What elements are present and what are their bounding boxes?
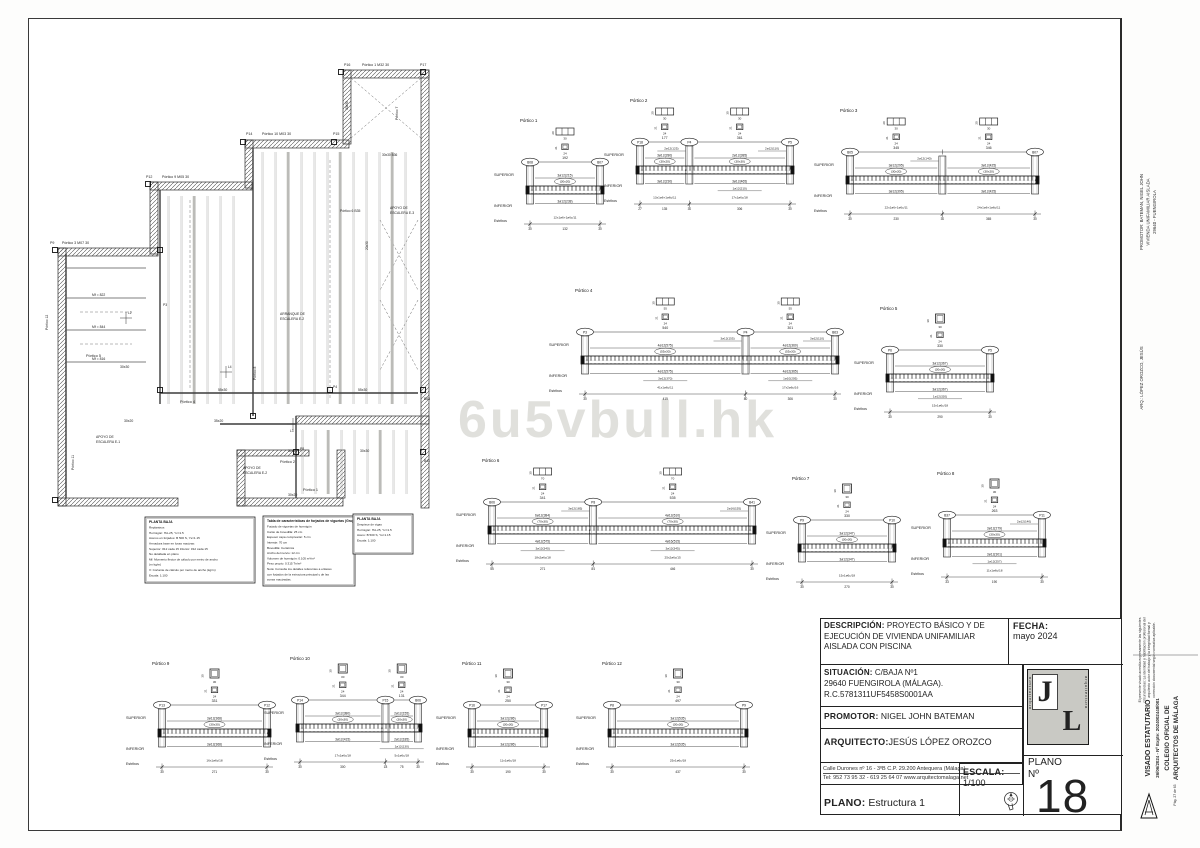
- svg-text:30: 30: [993, 490, 997, 494]
- svg-text:365: 365: [986, 217, 992, 221]
- svg-text:SUPERIOR: SUPERIOR: [911, 526, 931, 530]
- svg-text:30: 30: [987, 127, 991, 131]
- svg-text:3ø12(345): 3ø12(345): [665, 547, 679, 551]
- svg-text:B06: B06: [415, 698, 421, 702]
- svg-text:SUPERIOR: SUPERIOR: [494, 173, 514, 177]
- svg-text:11x1ø6c/18: 11x1ø6c/18: [500, 759, 516, 763]
- svg-text:24: 24: [789, 322, 793, 326]
- svg-text:4ø16(515): 4ø16(515): [665, 539, 680, 543]
- svg-text:30: 30: [341, 675, 345, 679]
- situation-label: SITUACIÓN:: [824, 668, 873, 677]
- svg-text:190: 190: [505, 770, 511, 774]
- svg-text:2ø12(385): 2ø12(385): [732, 154, 747, 158]
- svg-text:55: 55: [664, 307, 668, 311]
- svg-text:INFERIOR: INFERIOR: [436, 747, 454, 751]
- drawing-sheet: { "document": { "watermark": "6u5vbull.h…: [0, 0, 1200, 848]
- svg-text:(30x30): (30x30): [209, 723, 220, 727]
- svg-text:3ø12(535): 3ø12(535): [670, 742, 685, 746]
- svg-text:Pórtico 8: Pórtico 8: [937, 471, 955, 476]
- svg-text:B08: B08: [527, 160, 533, 164]
- svg-text:3ø12(465): 3ø12(465): [732, 179, 747, 183]
- svg-text:(30x30): (30x30): [337, 718, 348, 722]
- svg-text:13x1ø6+1ø6c/11: 13x1ø6+1ø6c/11: [653, 196, 676, 200]
- svg-text:SUPERIOR: SUPERIOR: [549, 343, 569, 347]
- svg-text:30: 30: [676, 680, 680, 684]
- svg-text:3ø12(425): 3ø12(425): [981, 164, 996, 168]
- svg-text:(30x30): (30x30): [734, 160, 745, 164]
- svg-text:SUPERIOR: SUPERIOR: [766, 531, 786, 535]
- svg-text:177: 177: [662, 136, 668, 140]
- north-stamp-icon: [1001, 790, 1021, 812]
- svg-text:30: 30: [800, 585, 804, 589]
- svg-text:330: 330: [844, 514, 850, 518]
- svg-text:41x1ø6c/11: 41x1ø6c/11: [657, 386, 673, 390]
- svg-text:21: 21: [836, 504, 840, 508]
- situation-line1: C/BAJA Nº1: [875, 668, 918, 677]
- svg-text:3ø12(367): 3ø12(367): [932, 362, 947, 366]
- svg-text:Estribos: Estribos: [126, 762, 139, 766]
- svg-text:24: 24: [341, 690, 345, 694]
- svg-text:30: 30: [529, 471, 533, 475]
- svg-text:INFERIOR: INFERIOR: [494, 204, 512, 208]
- svg-text:Pórtico 10: Pórtico 10: [290, 656, 310, 661]
- svg-text:1ø12(210): 1ø12(210): [733, 187, 747, 191]
- svg-text:Pórtico 7: Pórtico 7: [792, 476, 810, 481]
- svg-text:21: 21: [984, 499, 988, 503]
- svg-text:21: 21: [654, 126, 658, 130]
- svg-text:(70x30): (70x30): [667, 520, 678, 524]
- svg-text:24: 24: [845, 510, 849, 514]
- svg-text:Estribos: Estribos: [549, 389, 562, 393]
- svg-text:30: 30: [583, 397, 587, 401]
- svg-text:Estribos: Estribos: [576, 762, 589, 766]
- svg-text:30: 30: [416, 765, 420, 769]
- svg-text:30: 30: [750, 567, 754, 571]
- svg-text:3ø12(295): 3ø12(295): [889, 164, 904, 168]
- svg-text:24: 24: [676, 695, 680, 699]
- svg-text:21: 21: [929, 334, 933, 338]
- svg-text:21: 21: [729, 126, 733, 130]
- svg-text:P17: P17: [541, 703, 547, 707]
- date-value: mayo 2024: [1013, 631, 1119, 641]
- svg-text:230: 230: [894, 217, 900, 221]
- svg-text:PROMOTOR: BATEMAN, NIGEL: PROMOTOR: BATEMAN, NIGEL JOHN: [1139, 174, 1144, 250]
- portico-diagram-6: Pórtico 67030242170302421B06P8B41341535S…: [456, 452, 782, 590]
- svg-text:P9: P9: [742, 703, 746, 707]
- svg-text:21: 21: [497, 689, 501, 693]
- portico-diagram-3: Pórtico 33020242130202421B05B07345346SUP…: [814, 102, 1065, 240]
- svg-text:30: 30: [528, 227, 532, 231]
- svg-text:(30x20): (30x20): [891, 170, 902, 174]
- svg-text:B05: B05: [847, 150, 853, 154]
- svg-text:30: 30: [213, 680, 217, 684]
- svg-text:30: 30: [1033, 217, 1037, 221]
- date-cell: FECHA: mayo 2024: [1009, 619, 1123, 665]
- svg-text:(30x20): (30x20): [983, 170, 994, 174]
- svg-text:4ø12(610): 4ø12(610): [665, 514, 680, 518]
- svg-text:29640 - FUENGIROLA: 29640 - FUENGIROLA: [1152, 190, 1157, 234]
- svg-text:P6: P6: [888, 348, 892, 352]
- portico-diagram-4: Pórtico 45530242155302421P3P4B63540301SU…: [549, 282, 865, 420]
- svg-text:4ø12(575): 4ø12(575): [658, 369, 673, 373]
- portico-diagram-5: Pórtico 530302421P6P5330SUPERIOR3ø12(367…: [854, 300, 1020, 438]
- svg-text:Estribos: Estribos: [604, 199, 617, 203]
- svg-text:1ø12(257): 1ø12(257): [987, 560, 1001, 564]
- svg-text:3ø12(368): 3ø12(368): [207, 717, 222, 721]
- svg-text:30: 30: [833, 489, 837, 493]
- svg-text:20: 20: [975, 121, 979, 125]
- svg-text:(30x30): (30x30): [842, 538, 853, 542]
- svg-text:arquitecto autor del trabajo y: arquitecto autor del trabajo y la integr…: [1147, 622, 1151, 698]
- svg-text:1ø12(320): 1ø12(320): [933, 395, 947, 399]
- svg-text:ARQUITECTOS DE MÁLAGA: ARQUITECTOS DE MÁLAGA: [1173, 695, 1180, 780]
- svg-text:COLEGIO OFICIAL DE: COLEGIO OFICIAL DE: [1164, 705, 1171, 770]
- svg-text:B07: B07: [1032, 150, 1038, 154]
- svg-text:30: 30: [664, 674, 668, 678]
- svg-text:SUPERIOR: SUPERIOR: [456, 513, 476, 517]
- svg-text:B06: B06: [489, 500, 495, 504]
- svg-text:INFERIOR: INFERIOR: [576, 747, 594, 751]
- svg-text:VISADO ESTATUTARIO: VISADO ESTATUTARIO: [1145, 699, 1152, 777]
- svg-text:30: 30: [494, 674, 498, 678]
- svg-text:SUPERIOR: SUPERIOR: [264, 711, 284, 715]
- svg-text:(30x30): (30x30): [989, 533, 1000, 537]
- svg-text:271: 271: [540, 567, 546, 571]
- svg-text:24: 24: [213, 695, 217, 699]
- svg-text:3ø12(110): 3ø12(110): [810, 337, 824, 341]
- svg-text:446: 446: [670, 567, 676, 571]
- svg-text:21: 21: [532, 486, 536, 490]
- plan-title-label: PLANO:: [824, 797, 865, 809]
- svg-text:Pág. 27 de 63: Pág. 27 de 63: [1173, 784, 1177, 805]
- svg-text:30: 30: [833, 397, 837, 401]
- svg-text:3ø12(155): 3ø12(155): [720, 337, 734, 341]
- svg-text:4ø12(360): 4ø12(360): [783, 344, 798, 348]
- svg-text:4ø12(575): 4ø12(575): [535, 539, 550, 543]
- svg-text:21: 21: [885, 136, 889, 140]
- svg-text:INFERIOR: INFERIOR: [126, 747, 144, 751]
- svg-text:3ø12(370): 3ø12(370): [658, 377, 672, 381]
- svg-text:2ø12(185): 2ø12(185): [394, 737, 409, 741]
- svg-text:(70x30): (70x30): [537, 520, 548, 524]
- svg-text:SUPERIOR: SUPERIOR: [854, 361, 874, 365]
- svg-text:132: 132: [562, 227, 568, 231]
- svg-text:Estribos: Estribos: [766, 577, 779, 581]
- svg-text:540: 540: [662, 326, 668, 330]
- svg-text:21: 21: [779, 316, 783, 320]
- svg-text:16x1ø6c/18: 16x1ø6c/18: [206, 759, 222, 763]
- svg-text:30: 30: [298, 765, 302, 769]
- svg-text:30: 30: [610, 770, 614, 774]
- promoter-cell: PROMOTOR: NIGEL JOHN BATEMAN: [821, 707, 1023, 729]
- svg-text:Pórtico 12: Pórtico 12: [602, 661, 622, 666]
- svg-text:30: 30: [890, 585, 894, 589]
- svg-text:70: 70: [541, 477, 545, 481]
- svg-text:SUPERIOR: SUPERIOR: [604, 153, 624, 157]
- svg-text:21: 21: [332, 684, 336, 688]
- svg-text:P16: P16: [469, 703, 475, 707]
- svg-text:ARQ.: LÓPEZ OROZCO, JESÚS: ARQ.: LÓPEZ OROZCO, JESÚS: [1139, 346, 1144, 409]
- svg-text:P5: P5: [988, 348, 992, 352]
- svg-text:30: 30: [506, 680, 510, 684]
- svg-text:70: 70: [671, 477, 675, 481]
- svg-text:27: 27: [638, 207, 642, 211]
- svg-text:300: 300: [340, 765, 346, 769]
- svg-text:30: 30: [598, 227, 602, 231]
- svg-text:INFERIOR: INFERIOR: [549, 374, 567, 378]
- svg-text:P8: P8: [610, 703, 614, 707]
- svg-text:P4: P4: [743, 330, 747, 334]
- description-label: DESCRIPCIÓN:: [824, 621, 885, 630]
- svg-text:30: 30: [981, 484, 985, 488]
- svg-text:20: 20: [551, 131, 555, 135]
- svg-text:6ø12(384): 6ø12(384): [535, 514, 550, 518]
- svg-text:3ø12(535): 3ø12(535): [670, 717, 685, 721]
- situation-cell: SITUACIÓN: C/BAJA Nº1 29640 FUENGIROLA (…: [821, 665, 1023, 707]
- svg-text:415: 415: [663, 397, 669, 401]
- svg-text:30: 30: [895, 127, 899, 131]
- scale-value: 1/100: [963, 778, 1020, 789]
- svg-text:P5: P5: [788, 140, 792, 144]
- svg-text:17x1ø6c/18: 17x1ø6c/18: [732, 196, 748, 200]
- svg-text:SUPERIOR: SUPERIOR: [576, 716, 596, 720]
- svg-text:21: 21: [654, 316, 658, 320]
- svg-text:30: 30: [726, 111, 730, 115]
- svg-text:30: 30: [388, 669, 392, 673]
- svg-text:B37: B37: [944, 513, 950, 517]
- svg-text:24: 24: [664, 322, 668, 326]
- svg-text:21: 21: [204, 689, 208, 693]
- svg-text:Estribos: Estribos: [911, 572, 924, 576]
- svg-text:(30x20): (30x20): [659, 160, 670, 164]
- svg-text:Estribos: Estribos: [854, 407, 867, 411]
- svg-text:30: 30: [201, 674, 205, 678]
- svg-text:3ø12(415): 3ø12(415): [335, 737, 350, 741]
- svg-text:2ø12(140): 2ø12(140): [1017, 520, 1031, 524]
- svg-text:24: 24: [895, 142, 899, 146]
- architect-logo: J L arquitectura arquitectura: [1027, 669, 1089, 745]
- svg-text:30: 30: [941, 217, 945, 221]
- svg-text:270: 270: [844, 585, 850, 589]
- svg-text:P13: P13: [159, 703, 165, 707]
- svg-text:circunstancias: La identidad y: circunstancias: La identidad y habilitac…: [1143, 617, 1147, 703]
- svg-text:3ø12(215): 3ø12(215): [557, 174, 572, 178]
- situation-line3: R.C.5781311UF5458S0001AA: [824, 689, 1019, 700]
- svg-text:271: 271: [212, 770, 218, 774]
- svg-text:30: 30: [663, 117, 667, 121]
- svg-text:24: 24: [993, 505, 997, 509]
- svg-text:346: 346: [986, 146, 992, 150]
- svg-text:30: 30: [742, 770, 746, 774]
- svg-text:131: 131: [399, 694, 405, 698]
- svg-text:Pórtico 11: Pórtico 11: [462, 661, 482, 666]
- svg-text:B07: B07: [597, 160, 603, 164]
- svg-text:P4: P4: [687, 140, 691, 144]
- svg-text:24: 24: [541, 492, 545, 496]
- svg-text:20: 20: [651, 111, 655, 115]
- svg-text:30: 30: [563, 137, 567, 141]
- svg-text:Pórtico 2: Pórtico 2: [630, 98, 648, 103]
- svg-text:21: 21: [554, 146, 558, 150]
- svg-text:24x1ø6+1ø6c/11: 24x1ø6+1ø6c/11: [977, 206, 1000, 210]
- svg-text:535: 535: [670, 496, 676, 500]
- portico-diagram-2: Pórtico 23020242130302421P18P4P5177361SU…: [604, 92, 820, 230]
- svg-text:3ø12(286): 3ø12(286): [500, 742, 515, 746]
- promoter-label: PROMOTOR:: [824, 711, 879, 721]
- svg-text:(55x30): (55x30): [660, 350, 671, 354]
- description-cell: DESCRIPCIÓN: PROYECTO BÁSICO Y DE EJECUC…: [821, 619, 1009, 665]
- svg-text:SUPERIOR: SUPERIOR: [436, 716, 456, 720]
- svg-text:20: 20: [882, 121, 886, 125]
- plan-title-cell: PLANO: Estructura 1: [821, 785, 959, 816]
- svg-text:135: 135: [662, 207, 668, 211]
- svg-text:330: 330: [937, 344, 943, 348]
- svg-text:30: 30: [988, 415, 992, 419]
- portico-diagram-10: Pórtico 103030242130302421P14P15B0634413…: [264, 650, 448, 788]
- svg-text:30: 30: [542, 770, 546, 774]
- svg-text:El presente visado acredita ex: El presente visado acredita expresamente…: [1138, 617, 1142, 702]
- svg-text:3ø12(340): 3ø12(340): [535, 547, 549, 551]
- svg-text:18: 18: [384, 765, 388, 769]
- svg-text:2ø16(155): 2ø16(155): [727, 507, 741, 511]
- svg-text:3ø12(347): 3ø12(347): [839, 532, 854, 536]
- svg-text:Estribos: Estribos: [494, 219, 507, 223]
- svg-text:33: 33: [945, 580, 949, 584]
- svg-text:2ø12(110): 2ø12(110): [765, 147, 779, 151]
- svg-text:P9: P9: [800, 518, 804, 522]
- svg-text:17x2ø6c/16: 17x2ø6c/16: [782, 386, 798, 390]
- svg-text:(30x30): (30x30): [935, 368, 946, 372]
- svg-text:190: 190: [992, 580, 998, 584]
- svg-text:24: 24: [400, 690, 404, 694]
- svg-text:(55x30): (55x30): [785, 350, 796, 354]
- svg-text:263: 263: [992, 509, 998, 513]
- svg-text:3ø12(279): 3ø12(279): [987, 527, 1002, 531]
- logo-letter-j: J: [1032, 674, 1058, 710]
- svg-text:INFERIOR: INFERIOR: [456, 544, 474, 548]
- svg-text:30: 30: [776, 301, 780, 305]
- svg-text:4ø12(365): 4ø12(365): [783, 369, 798, 373]
- svg-text:331: 331: [212, 699, 218, 703]
- svg-text:361: 361: [737, 136, 743, 140]
- svg-text:P18: P18: [637, 140, 643, 144]
- architect-value: JESÚS LÓPEZ OROZCO: [889, 737, 992, 747]
- svg-text:2ø12(155): 2ø12(155): [394, 712, 409, 716]
- scale-cell: ESCALA: 1/100: [959, 763, 1023, 816]
- svg-text:corrección documental según no: corrección documental según normativa ap…: [1152, 622, 1156, 697]
- svg-text:84: 84: [591, 567, 595, 571]
- svg-text:Pórtico 6: Pórtico 6: [482, 458, 500, 463]
- svg-text:SUPERIOR: SUPERIOR: [126, 716, 146, 720]
- svg-text:30: 30: [688, 207, 692, 211]
- svg-text:Estribos: Estribos: [456, 559, 469, 563]
- svg-text:55: 55: [490, 567, 494, 571]
- date-label: FECHA:: [1013, 621, 1119, 631]
- svg-text:497: 497: [675, 699, 681, 703]
- svg-text:P15: P15: [383, 698, 389, 702]
- svg-text:21: 21: [662, 486, 666, 490]
- logo-letter-l: L: [1060, 706, 1084, 738]
- svg-text:3ø12(425): 3ø12(425): [981, 189, 996, 193]
- svg-text:Pórtico 5: Pórtico 5: [880, 306, 898, 311]
- svg-text:(30x30): (30x30): [673, 723, 684, 727]
- svg-text:24: 24: [663, 132, 667, 136]
- svg-text:24: 24: [987, 142, 991, 146]
- svg-text:SUPERIOR: SUPERIOR: [814, 163, 834, 167]
- portico-diagram-8: Pórtico 830302421B37P11263SUPERIOR3ø12(2…: [911, 465, 1072, 603]
- svg-text:3ø12(367): 3ø12(367): [932, 387, 947, 391]
- svg-text:P3: P3: [583, 330, 587, 334]
- svg-text:192: 192: [562, 156, 568, 160]
- svg-text:26/06/2024 - Nº Expte: 2024002: 26/06/2024 - Nº Expte: 2024002448/001: [1155, 698, 1160, 778]
- svg-text:25x2ø6c/15: 25x2ø6c/15: [665, 556, 681, 560]
- logo-plan-number-cell: J L arquitectura arquitectura PLANO Nº 1…: [1023, 665, 1123, 816]
- portico-diagram-12: Pórtico 1230302421P8P9497SUPERIOR3ø12(53…: [576, 655, 774, 793]
- svg-text:INFERIOR: INFERIOR: [766, 562, 784, 566]
- svg-text:1ø10(205): 1ø10(205): [783, 377, 797, 381]
- plan-number-value: 18: [1036, 769, 1089, 816]
- svg-text:30: 30: [160, 770, 164, 774]
- svg-text:3ø12(301): 3ø12(301): [987, 552, 1002, 556]
- svg-text:30: 30: [848, 217, 852, 221]
- svg-text:3ø12(380): 3ø12(380): [335, 712, 350, 716]
- svg-text:345: 345: [893, 146, 899, 150]
- address-line2: Tel: 952 73 95 32 - 619 25 64 07 www.arq…: [823, 775, 968, 781]
- svg-text:306: 306: [788, 397, 794, 401]
- svg-text:55: 55: [789, 307, 793, 311]
- svg-text:30: 30: [738, 117, 742, 121]
- svg-text:3ø12(280): 3ø12(280): [657, 154, 672, 158]
- svg-text:2ø12(125): 2ø12(125): [664, 147, 678, 151]
- svg-text:25x1ø6c/18: 25x1ø6c/18: [670, 759, 686, 763]
- svg-text:341: 341: [540, 496, 546, 500]
- svg-text:3ø12(185): 3ø12(185): [568, 507, 582, 511]
- svg-text:VIVIENDA UNIFAMILIAR AISLADA: VIVIENDA UNIFAMILIAR AISLADA: [1146, 178, 1151, 245]
- svg-text:Estribos: Estribos: [264, 757, 277, 761]
- svg-text:24: 24: [671, 492, 675, 496]
- svg-text:P8: P8: [591, 500, 595, 504]
- svg-text:(30x30): (30x30): [396, 718, 407, 722]
- svg-text:15x1ø6c/18: 15x1ø6c/18: [839, 574, 855, 578]
- svg-text:30: 30: [329, 669, 333, 673]
- svg-text:B41: B41: [749, 500, 755, 504]
- svg-text:30: 30: [659, 471, 663, 475]
- svg-text:24: 24: [563, 152, 567, 156]
- svg-text:301: 301: [787, 326, 793, 330]
- svg-text:21: 21: [978, 136, 982, 140]
- svg-text:24: 24: [938, 340, 942, 344]
- svg-text:22x1ø6+1ø6c/11: 22x1ø6+1ø6c/11: [885, 206, 908, 210]
- svg-text:INFERIOR: INFERIOR: [854, 392, 872, 396]
- svg-text:B63: B63: [832, 330, 838, 334]
- svg-text:Pórtico 4: Pórtico 4: [575, 288, 593, 293]
- svg-text:INFERIOR: INFERIOR: [264, 742, 282, 746]
- svg-text:21: 21: [391, 684, 395, 688]
- svg-text:Estribos: Estribos: [814, 209, 827, 213]
- svg-text:INFERIOR: INFERIOR: [911, 557, 929, 561]
- svg-text:3ø12(238): 3ø12(238): [557, 199, 572, 203]
- svg-text:30: 30: [938, 325, 942, 329]
- svg-text:3ø12(368): 3ø12(368): [207, 742, 222, 746]
- scale-label: ESCALA:: [963, 767, 1020, 778]
- svg-text:21: 21: [667, 689, 671, 693]
- svg-text:30: 30: [888, 415, 892, 419]
- svg-text:75: 75: [400, 765, 404, 769]
- title-block: DESCRIPCIÓN: PROYECTO BÁSICO Y DE EJECUC…: [820, 618, 1122, 815]
- svg-text:1ø12(130): 1ø12(130): [395, 745, 409, 749]
- svg-text:3ø12(347): 3ø12(347): [839, 557, 854, 561]
- portico-diagram-7: Pórtico 730302421P9P10330SUPERIOR3ø12(34…: [766, 470, 922, 608]
